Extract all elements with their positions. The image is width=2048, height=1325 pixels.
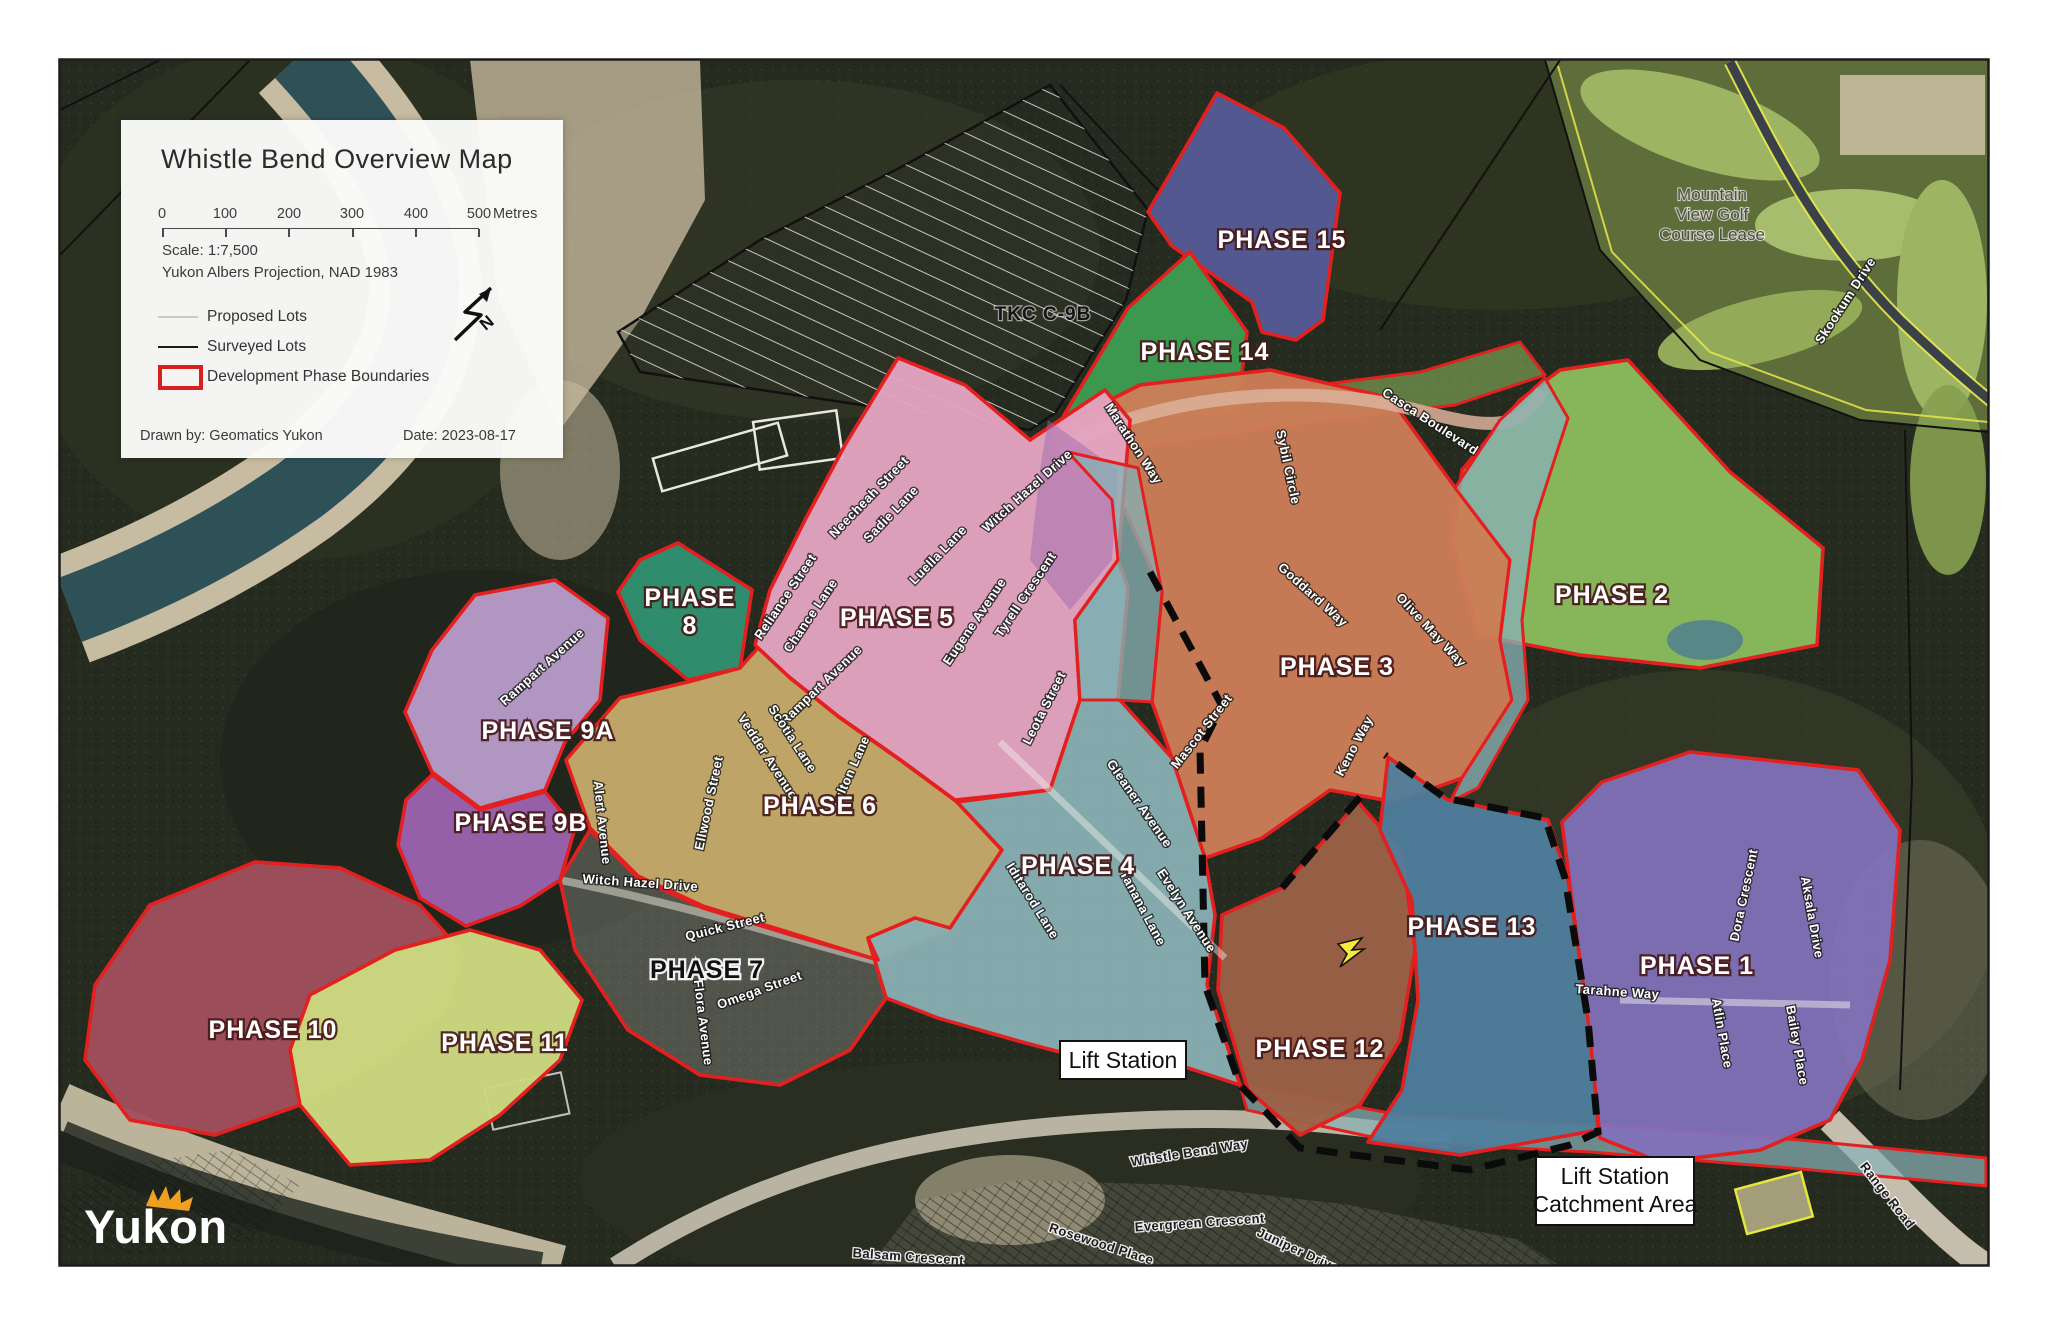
- phase-13-label: PHASE 13: [1408, 913, 1537, 941]
- drawn-by-text: Drawn by: Geomatics Yukon: [140, 428, 323, 444]
- map-page: Casca Boulevard Marathon Way Sybil Circl…: [0, 0, 2048, 1325]
- scale-bar: [162, 228, 479, 237]
- phase-boundary-swatch: [158, 365, 203, 390]
- phase-2-label: PHASE 2: [1555, 581, 1669, 609]
- phase-9b-label: PHASE 9B: [454, 809, 587, 837]
- phase-4-label: PHASE 4: [1021, 852, 1135, 880]
- scale-tick-300: 300: [340, 206, 364, 222]
- tkc-area-label: TKC C-9B: [995, 304, 1092, 325]
- phase-9a-label: PHASE 9A: [481, 717, 614, 745]
- phase-3-label: PHASE 3: [1280, 653, 1394, 681]
- golf-lease-label-line2: View Golf: [1676, 205, 1749, 224]
- legend-panel: Whistle Bend Overview Map 0 100 200 300 …: [121, 120, 563, 458]
- scale-tick-400: 400: [404, 206, 428, 222]
- phase-5-label: PHASE 5: [840, 604, 954, 632]
- scale-tick-200: 200: [277, 206, 301, 222]
- north-arrow-icon: N: [439, 280, 515, 356]
- phase-1-label: PHASE 1: [1640, 952, 1754, 980]
- proposed-lots-label: Proposed Lots: [207, 308, 307, 326]
- projection-text: Yukon Albers Projection, NAD 1983: [162, 264, 398, 281]
- phase-8-label-line1: PHASE: [644, 584, 735, 612]
- golf-lease-label-line1: Mountain: [1677, 185, 1747, 204]
- scale-unit: Metres: [493, 206, 537, 222]
- phase-14-label: PHASE 14: [1141, 338, 1270, 366]
- scale-text: Scale: 1:7,500: [162, 242, 258, 259]
- scale-tick-100: 100: [213, 206, 237, 222]
- golf-lease-label-line3: Course Lease: [1659, 225, 1765, 244]
- catchment-callout: Lift Station Catchment Area: [1533, 1157, 1698, 1225]
- scale-tick-500: 500: [467, 206, 491, 222]
- lift-station-callout: Lift Station: [1060, 1041, 1186, 1079]
- date-text: Date: 2023-08-17: [403, 428, 516, 444]
- lift-station-callout-text: Lift Station: [1069, 1047, 1178, 1073]
- catchment-callout-line2: Catchment Area: [1533, 1191, 1698, 1217]
- phase-11-label: PHASE 11: [441, 1029, 569, 1057]
- phase-10-label: PHASE 10: [209, 1016, 338, 1044]
- phase-12-label: PHASE 12: [1256, 1035, 1385, 1063]
- map-title: Whistle Bend Overview Map: [161, 144, 513, 175]
- surveyed-lots-swatch: [158, 346, 198, 348]
- proposed-lots-swatch: [158, 316, 198, 318]
- phase-15-label: PHASE 15: [1218, 226, 1347, 254]
- scale-tick-0: 0: [158, 206, 166, 222]
- phase-7-label: PHASE 7: [650, 956, 764, 984]
- catchment-callout-line1: Lift Station: [1561, 1163, 1670, 1189]
- phase-8-label-line2: 8: [683, 612, 698, 640]
- phase-boundary-label: Development Phase Boundaries: [207, 368, 429, 386]
- phase-6-label: PHASE 6: [763, 792, 877, 820]
- surveyed-lots-label: Surveyed Lots: [207, 338, 306, 356]
- yukon-logo-text: Yukon: [84, 1200, 228, 1253]
